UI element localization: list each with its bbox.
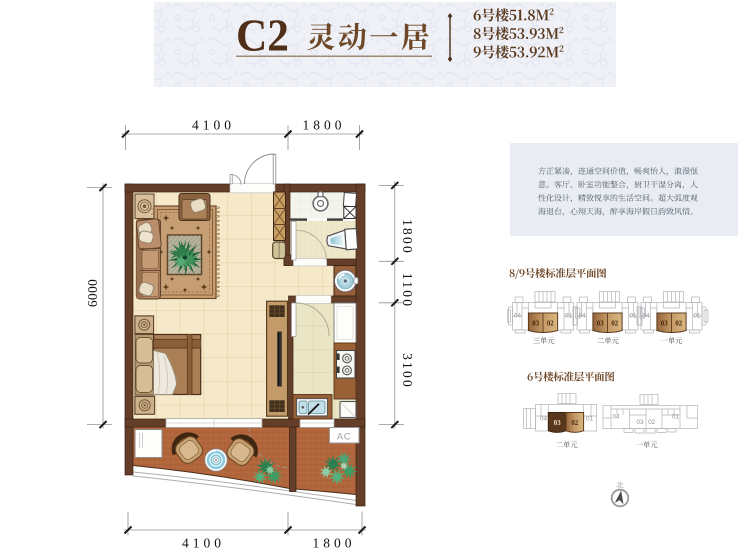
svg-text:03: 03 (636, 419, 644, 426)
svg-text:02: 02 (571, 420, 578, 427)
svg-text:01: 01 (693, 313, 701, 320)
svg-text:02: 02 (611, 321, 618, 328)
svg-text:1800: 1800 (400, 219, 415, 255)
svg-text:03: 03 (532, 321, 539, 328)
svg-text:3100: 3100 (400, 353, 415, 389)
svg-text:04: 04 (612, 414, 620, 421)
svg-text:C2: C2 (236, 10, 289, 61)
svg-text:03: 03 (597, 321, 604, 328)
svg-text:04: 04 (578, 313, 586, 320)
svg-text:01: 01 (672, 414, 680, 421)
svg-text:4100: 4100 (182, 536, 225, 551)
svg-text:03: 03 (554, 420, 561, 427)
svg-text:4100: 4100 (192, 118, 235, 133)
svg-text:02: 02 (648, 419, 656, 426)
svg-text:01: 01 (565, 313, 573, 320)
svg-text:03: 03 (661, 321, 668, 328)
svg-text:04: 04 (514, 313, 522, 320)
svg-text:6000: 6000 (85, 279, 100, 307)
svg-text:1100: 1100 (400, 273, 415, 308)
svg-text:01: 01 (629, 313, 637, 320)
svg-text:AC: AC (337, 432, 351, 443)
svg-text:02: 02 (547, 321, 554, 328)
svg-text:01: 01 (586, 416, 594, 423)
svg-text:1800: 1800 (303, 118, 346, 133)
svg-text:1800: 1800 (313, 536, 356, 551)
svg-text:04: 04 (540, 416, 548, 423)
svg-text:04: 04 (642, 313, 650, 320)
svg-text:02: 02 (675, 321, 682, 328)
